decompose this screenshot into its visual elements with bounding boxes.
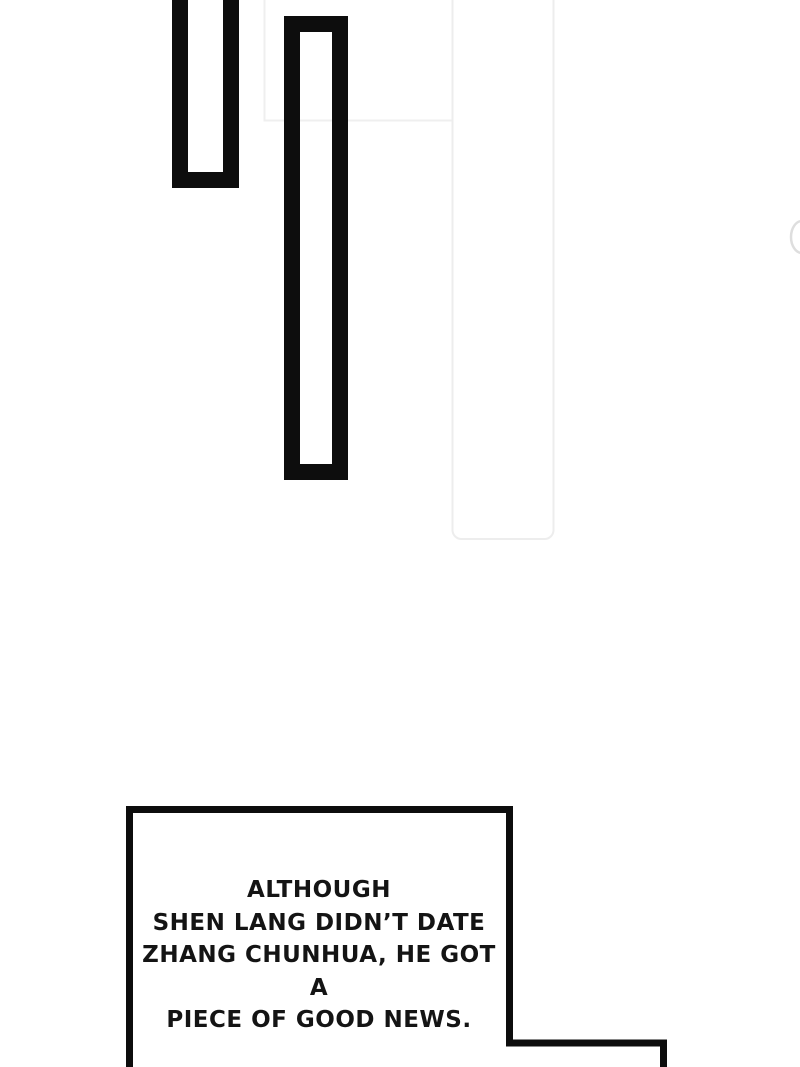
caption-text: ALTHOUGH SHEN LANG DIDN’T DATE ZHANG CHU… xyxy=(133,874,505,1037)
faint-panel-outline xyxy=(453,0,554,539)
bubble-edge-fragment xyxy=(791,221,800,253)
panel-bar-tall xyxy=(292,24,340,472)
comic-page: ALTHOUGH SHEN LANG DIDN’T DATE ZHANG CHU… xyxy=(0,0,800,1067)
panel-bar-short xyxy=(180,0,231,180)
